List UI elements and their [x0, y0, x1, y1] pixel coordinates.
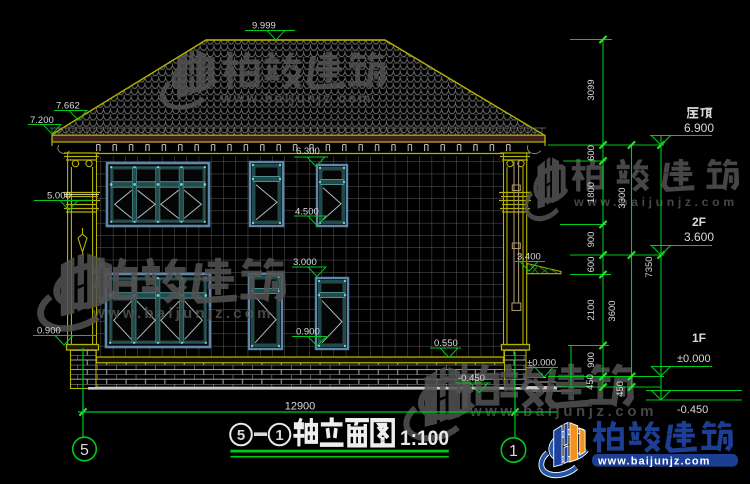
- svg-text:1F: 1F: [692, 331, 706, 345]
- svg-text:3099: 3099: [586, 79, 597, 100]
- svg-text:3600: 3600: [607, 300, 618, 321]
- svg-text:5: 5: [80, 442, 89, 459]
- svg-text:0.900: 0.900: [37, 326, 61, 337]
- svg-text:5: 5: [237, 427, 245, 444]
- svg-text:900: 900: [586, 232, 597, 248]
- svg-text:3300: 3300: [617, 187, 628, 208]
- svg-text:±0.000: ±0.000: [527, 358, 556, 369]
- svg-text:±0.000: ±0.000: [677, 353, 711, 365]
- svg-text:0.550: 0.550: [434, 338, 458, 349]
- svg-text:600: 600: [586, 257, 597, 273]
- svg-text:www.baijunjz.com: www.baijunjz.com: [597, 456, 711, 468]
- svg-text:www.baijunjz.com: www.baijunjz.com: [92, 305, 274, 322]
- svg-text:600: 600: [586, 145, 597, 161]
- svg-text:900: 900: [586, 352, 597, 368]
- svg-text:1800: 1800: [586, 182, 597, 203]
- svg-text:1: 1: [275, 427, 283, 444]
- svg-text:1: 1: [509, 443, 518, 460]
- svg-text:5.000: 5.000: [47, 191, 71, 202]
- svg-text:6.300: 6.300: [296, 146, 320, 157]
- svg-text:7.662: 7.662: [56, 101, 80, 112]
- svg-text:-0.450: -0.450: [458, 373, 485, 384]
- svg-text:12900: 12900: [285, 401, 316, 413]
- svg-text:www.baijunjz.com: www.baijunjz.com: [573, 195, 738, 209]
- svg-text:6.900: 6.900: [684, 121, 714, 135]
- svg-text:3.000: 3.000: [293, 257, 317, 268]
- svg-text:1:100: 1:100: [400, 427, 449, 450]
- svg-text:3.600: 3.600: [684, 230, 714, 244]
- svg-text:4.500: 4.500: [295, 207, 319, 218]
- svg-text:450: 450: [615, 381, 626, 397]
- svg-text:3.400: 3.400: [517, 252, 541, 263]
- svg-text:450: 450: [585, 374, 596, 390]
- svg-text:0.900: 0.900: [296, 327, 320, 338]
- svg-text:2100: 2100: [586, 299, 597, 320]
- svg-text:www.baijunjz.com: www.baijunjz.com: [220, 91, 373, 106]
- svg-text:9.999: 9.999: [252, 21, 276, 32]
- svg-text:7350: 7350: [644, 256, 655, 277]
- svg-text:2F: 2F: [692, 215, 706, 229]
- svg-text:-0.450: -0.450: [677, 404, 708, 416]
- svg-text:7.200: 7.200: [30, 115, 54, 126]
